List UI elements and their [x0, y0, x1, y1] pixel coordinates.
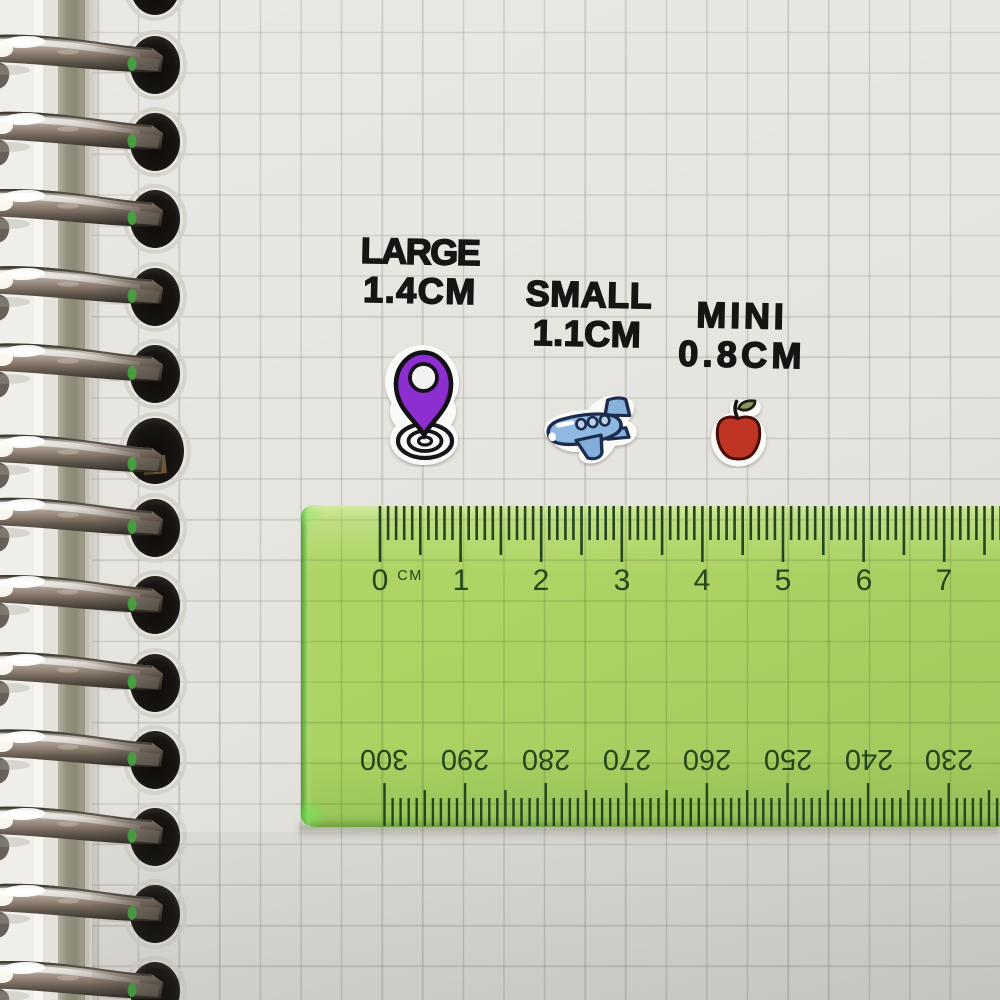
- svg-text:280: 280: [522, 743, 570, 775]
- svg-text:290: 290: [441, 743, 489, 775]
- svg-text:6: 6: [856, 564, 873, 597]
- svg-text:300: 300: [360, 743, 408, 775]
- svg-text:CM: CM: [397, 568, 423, 584]
- svg-text:270: 270: [603, 743, 651, 775]
- svg-text:260: 260: [683, 743, 731, 775]
- svg-text:240: 240: [845, 743, 893, 775]
- svg-text:7: 7: [936, 564, 953, 597]
- svg-text:1: 1: [453, 564, 470, 597]
- svg-text:3: 3: [614, 564, 631, 597]
- svg-text:230: 230: [925, 743, 973, 775]
- svg-text:5: 5: [775, 564, 792, 597]
- svg-text:2: 2: [533, 564, 550, 597]
- svg-text:250: 250: [764, 743, 812, 775]
- svg-text:4: 4: [694, 564, 711, 597]
- svg-text:0: 0: [372, 564, 389, 597]
